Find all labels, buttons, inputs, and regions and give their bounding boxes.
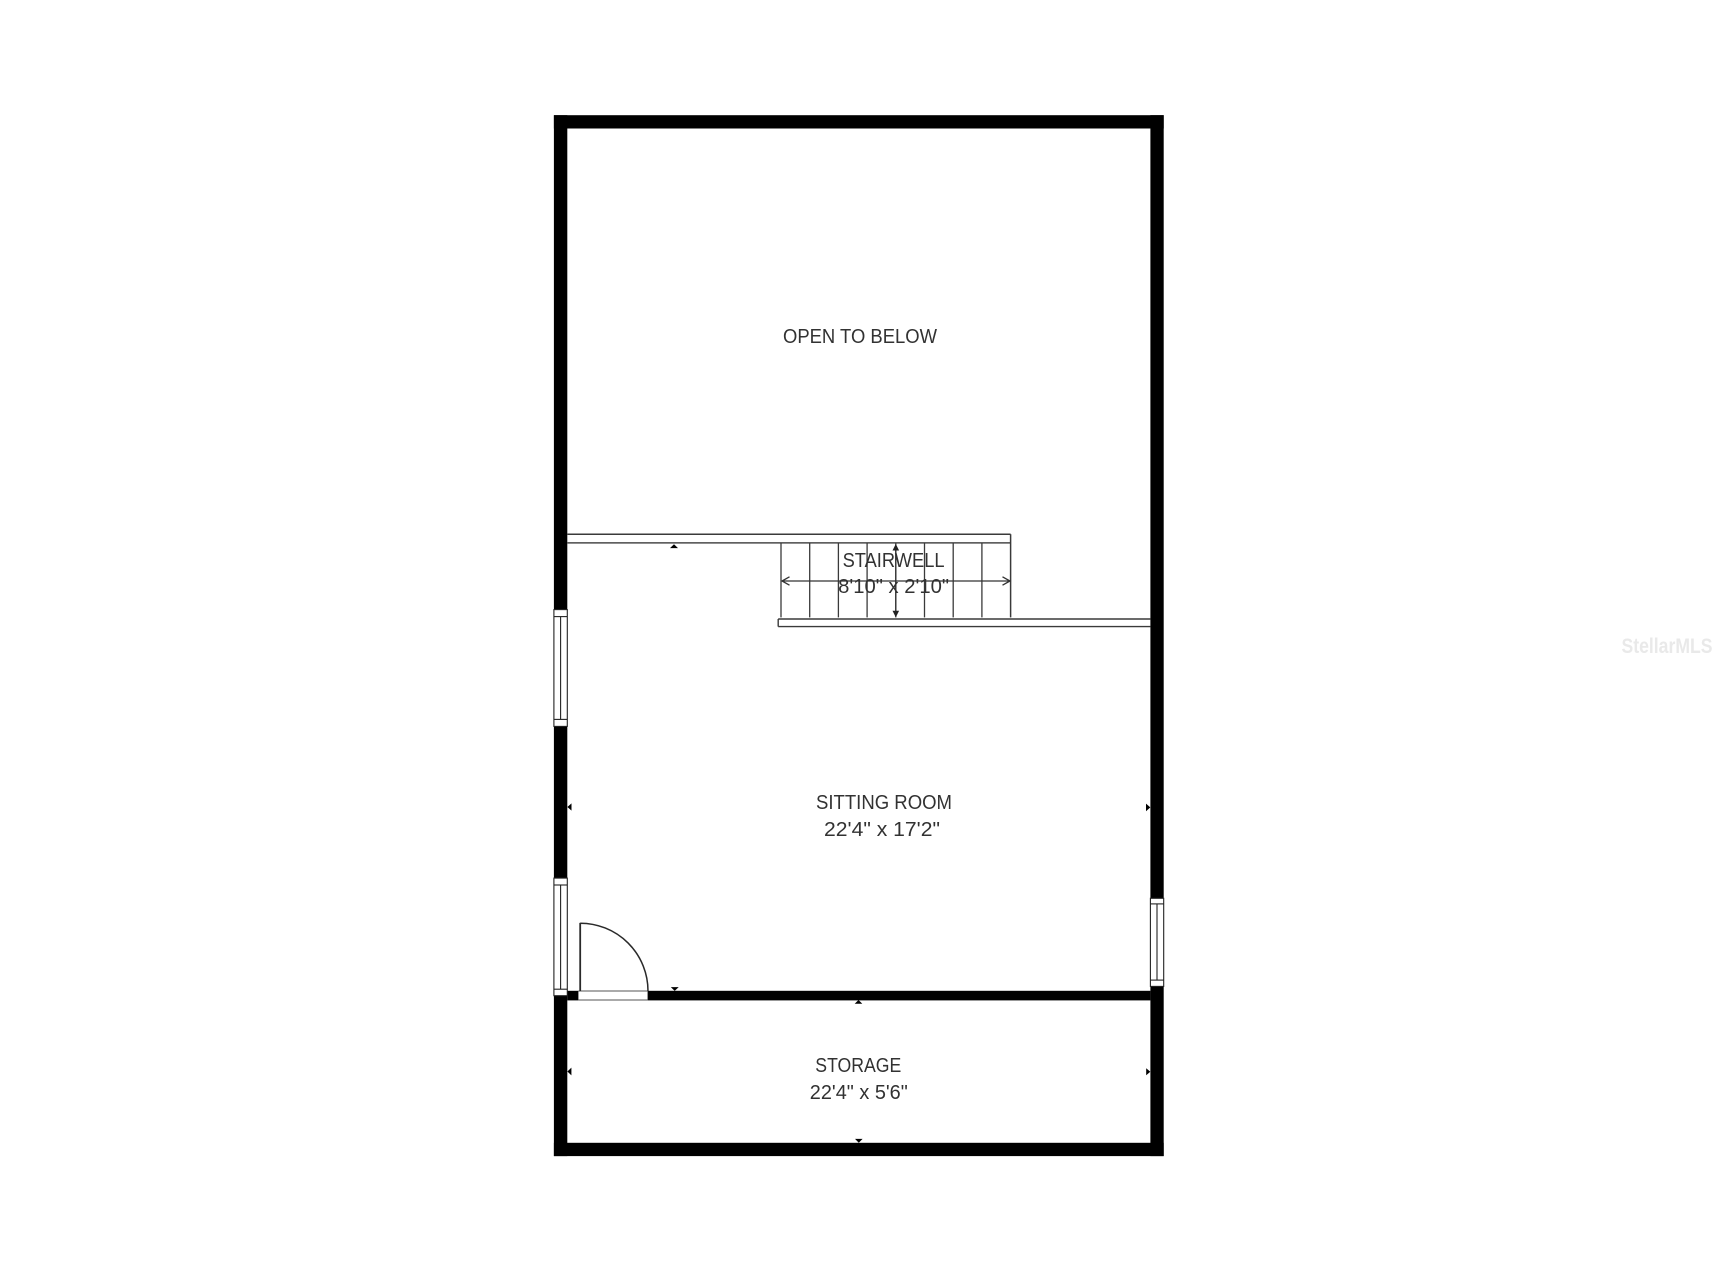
svg-text:SITTING ROOM: SITTING ROOM: [816, 791, 952, 814]
svg-text:22'4" x 17'2": 22'4" x 17'2": [824, 818, 940, 841]
svg-text:STORAGE: STORAGE: [815, 1054, 901, 1077]
svg-text:22'4" x 5'6": 22'4" x 5'6": [810, 1081, 908, 1104]
svg-text:STAIRWELL: STAIRWELL: [843, 549, 945, 572]
svg-text:8'10" x 2'10": 8'10" x 2'10": [838, 575, 949, 598]
svg-text:StellarMLS: StellarMLS: [1622, 634, 1713, 658]
svg-text:OPEN TO BELOW: OPEN TO BELOW: [783, 325, 938, 348]
